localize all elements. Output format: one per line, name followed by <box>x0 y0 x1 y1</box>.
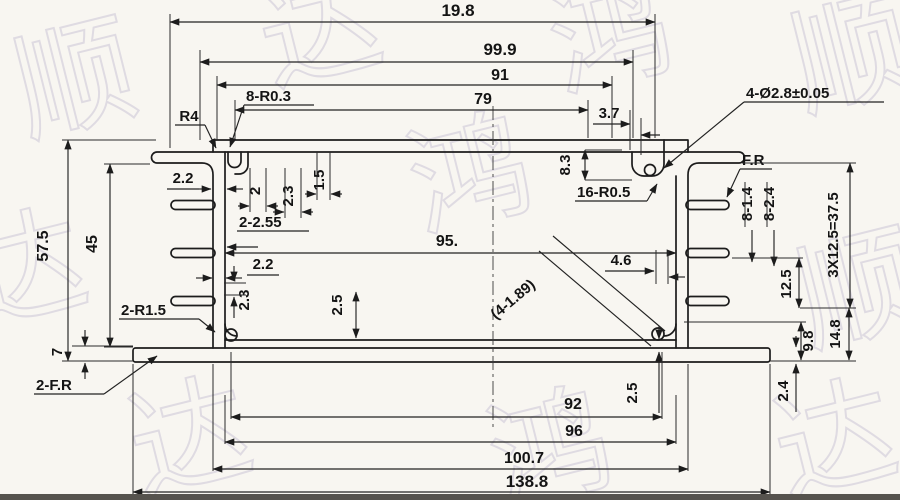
dimensions-interior: 2-2.55 95. 2.2 2.3 2.5 4.6 (4-1.89) 2.5 <box>196 214 685 413</box>
callout-fr-left-label: 2-F.R <box>36 377 72 394</box>
dim-45-label: 45 <box>84 235 101 253</box>
dim-24-label: 2.4 <box>775 380 792 402</box>
callout-8r03-label: 8-R0.3 <box>246 88 291 105</box>
dim-7-label: 7 <box>49 348 66 356</box>
right-wall <box>688 152 745 348</box>
dim-15-label: 1.5 <box>311 170 328 191</box>
dim-1388-label: 138.8 <box>506 472 549 491</box>
watermark-char: 顺 <box>0 0 150 163</box>
watermark: 顺 达 鸿 顺 达 鸿 顺 达 鸿 达 <box>0 0 900 500</box>
dim-pitch-label: 12.5 <box>778 269 795 298</box>
watermark-char: 鸿 <box>475 369 625 500</box>
dim-overall-top-label: 19.8 <box>441 1 474 20</box>
callout-16r05-label: 16-R0.5 <box>577 184 630 201</box>
dim-23-upper-label: 2.3 <box>280 186 297 207</box>
right-fin <box>686 249 729 258</box>
dim-98-label: 9.8 <box>800 331 817 352</box>
dim-575-label: 57.5 <box>35 230 52 261</box>
callout-fr-right-label: F.R <box>742 152 765 169</box>
top-right-boss <box>632 140 664 176</box>
watermark-char: 顺 <box>777 0 900 138</box>
callout-diag-label: (4-1.89) <box>488 276 539 323</box>
bottom-right-boss-arc <box>664 324 676 336</box>
dim-25-mid-label: 2.5 <box>329 295 346 316</box>
watermark-char: 鸿 <box>535 0 685 118</box>
dim-95-label: 95. <box>436 233 458 250</box>
dim-92-label: 92 <box>564 396 582 413</box>
dim-91-label: 91 <box>491 67 509 84</box>
drawing-canvas: 顺 达 鸿 顺 达 鸿 顺 达 鸿 达 <box>0 0 900 500</box>
dim-22-upper-label: 2.2 <box>173 170 194 187</box>
left-fin <box>171 201 215 210</box>
drawing-page: 顺 达 鸿 顺 达 鸿 顺 达 鸿 达 <box>0 0 900 500</box>
top-left-boss <box>228 152 241 168</box>
left-fin <box>171 297 215 306</box>
dim-25-bottom-label: 2.5 <box>624 383 641 404</box>
dim-148-label: 14.8 <box>827 319 844 348</box>
dim-23-lower-label: 2.3 <box>236 290 253 311</box>
right-fin <box>686 297 729 306</box>
footer-bar <box>0 494 900 500</box>
callout-hole-label: 4-Ø2.8±0.05 <box>746 85 829 102</box>
dim-1007-label: 100.7 <box>504 450 544 467</box>
callout-slots-label: 2-2.55 <box>239 214 282 231</box>
dim-pitch-total-label: 3X12.5=37.5 <box>825 192 842 278</box>
left-fin <box>171 249 215 258</box>
dim-22-lower-label: 2.2 <box>253 256 274 273</box>
dim-96-label: 96 <box>565 423 583 440</box>
watermark-char: 达 <box>760 359 900 500</box>
dim-46-label: 4.6 <box>611 252 632 269</box>
dim-83-label: 8.3 <box>557 155 574 176</box>
right-fin <box>686 201 729 210</box>
bottom-right-boss <box>652 328 664 340</box>
dim-79-label: 79 <box>474 91 492 108</box>
callout-2r15-label: 2-R1.5 <box>121 302 166 319</box>
dim-fin-thickness-label: 8-1.4 <box>739 186 756 221</box>
dim-37-label: 3.7 <box>599 105 620 122</box>
dim-999-label: 99.9 <box>483 40 516 59</box>
watermark-char: 鸿 <box>395 94 545 258</box>
screw-hole <box>645 165 656 176</box>
watermark-char: 达 <box>115 357 265 500</box>
watermark-char: 达 <box>0 189 100 353</box>
callout-r4-label: R4 <box>179 108 199 125</box>
dim-fin-gap-label: 8-2.4 <box>761 186 778 221</box>
